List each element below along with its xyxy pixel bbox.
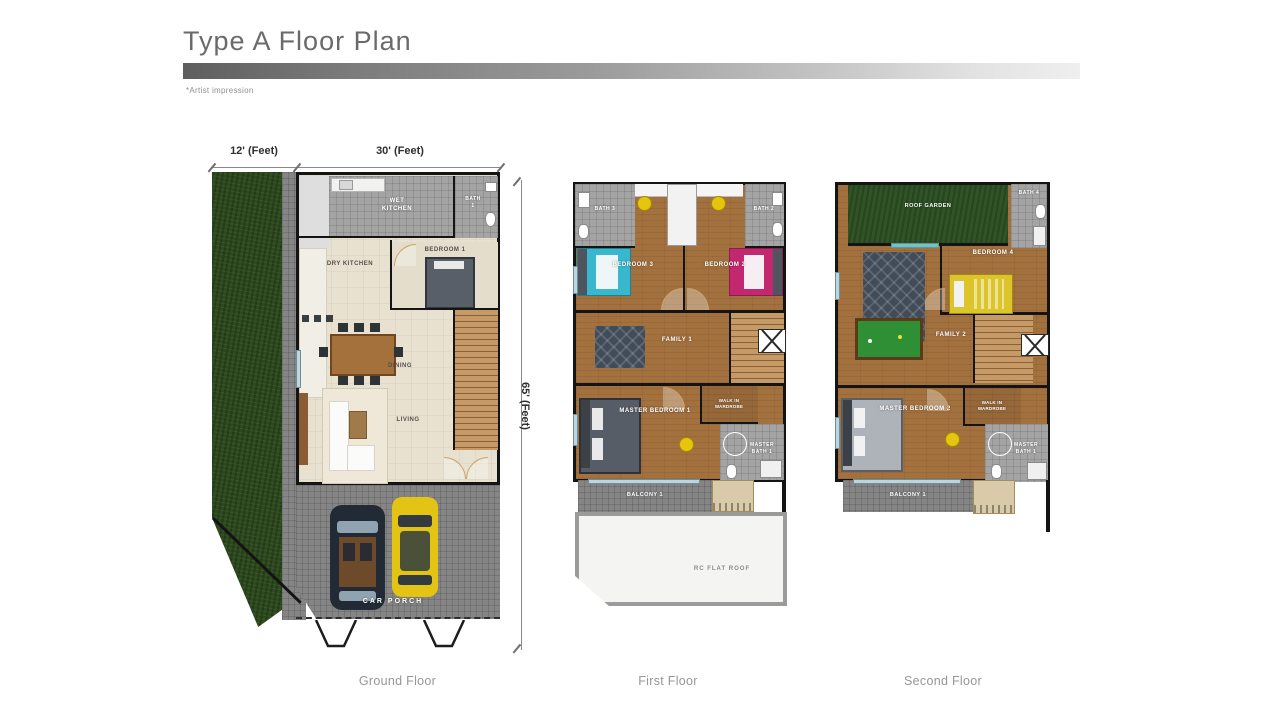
dining-chair xyxy=(354,376,364,385)
wall xyxy=(299,236,455,238)
car-rear-window xyxy=(398,575,432,585)
bed xyxy=(425,257,475,309)
sliding-door-window xyxy=(853,479,961,484)
window xyxy=(573,414,578,446)
car-porch-label: CAR PORCH xyxy=(338,597,448,606)
porch-entry-notch xyxy=(314,620,358,648)
roof-garden-area: ROOF GARDEN xyxy=(848,185,1008,243)
wall xyxy=(453,310,455,450)
dimension-line-top xyxy=(212,167,502,168)
family-1-label: FAMILY 1 xyxy=(645,337,709,345)
wall xyxy=(973,315,975,383)
ground-floor-caption: Ground Floor xyxy=(340,674,455,688)
car-cabin xyxy=(339,537,376,587)
bath-4-room: BATH 4 xyxy=(1011,184,1047,248)
bath-1-label: BATH 1 xyxy=(463,196,483,209)
sofa-seat xyxy=(347,445,375,471)
dining-chair xyxy=(319,347,328,357)
bed-headboard xyxy=(773,249,782,295)
stair-cross-marker xyxy=(758,329,786,353)
wall xyxy=(729,313,731,383)
bed-pillow xyxy=(854,436,865,456)
bed-sheet xyxy=(974,279,1004,309)
pool-ball xyxy=(868,339,872,343)
dry-kitchen-counter xyxy=(299,248,327,398)
black-car xyxy=(330,505,385,610)
planter-box xyxy=(712,480,754,512)
bed-pillow xyxy=(592,438,603,460)
window xyxy=(573,266,578,294)
bed-magenta xyxy=(729,248,783,296)
first-floor-caption: First Floor xyxy=(612,674,724,688)
coffee-table xyxy=(349,411,367,439)
wet-kitchen-label: WET KITCHEN xyxy=(377,198,417,214)
car-windshield xyxy=(337,521,378,533)
master-bath-1-room: MASTER BATH 1 xyxy=(720,424,784,480)
toilet-fixture xyxy=(772,222,783,237)
bar-stool xyxy=(326,315,333,322)
dining-chair xyxy=(354,323,364,332)
bed-sheet xyxy=(744,255,764,289)
balcony-room: BALCONY 1 xyxy=(843,480,973,512)
shower-circle xyxy=(988,432,1012,456)
dining-label: DINING xyxy=(378,363,422,371)
car-seat xyxy=(343,543,355,561)
toilet-fixture xyxy=(578,224,589,239)
bed-cyan xyxy=(577,248,631,296)
bar-stool xyxy=(302,315,309,322)
balcony-1-room: BALCONY 1 xyxy=(578,480,712,512)
bath-4-label: BATH 4 xyxy=(1018,190,1040,197)
bedroom-4-label: BEDROOM 4 xyxy=(947,250,1039,258)
dry-kitchen-label: DRY KITCHEN xyxy=(322,261,378,269)
stair-cross-marker xyxy=(1021,334,1049,356)
rc-flat-roof-area: RC FLAT ROOF xyxy=(575,512,787,606)
rc-flat-roof-label: RC FLAT ROOF xyxy=(667,566,777,574)
bed-pillow xyxy=(434,261,464,269)
living-label: LIVING xyxy=(386,417,430,425)
bedroom-1-label: BEDROOM 1 xyxy=(410,247,480,255)
car-roof xyxy=(400,531,430,571)
stool-yellow xyxy=(637,196,652,211)
walk-in-wardrobe-room: WALK IN WARDROBE xyxy=(700,386,758,422)
dimension-label-12ft: 12' (Feet) xyxy=(210,145,298,157)
planter-hatch xyxy=(974,505,1014,513)
window xyxy=(891,243,939,248)
dimension-label-30ft: 30' (Feet) xyxy=(298,145,502,157)
shower-circle xyxy=(723,432,747,456)
bed-sheet xyxy=(596,255,618,289)
tv-console xyxy=(299,393,308,465)
bed-headboard xyxy=(843,400,852,466)
yellow-car xyxy=(392,497,438,597)
bed-pillow xyxy=(854,408,865,428)
stool-yellow xyxy=(711,196,726,211)
walk-in-wardrobe-room: WALK IN WARDROBE xyxy=(963,388,1021,424)
toilet-fixture xyxy=(726,464,737,479)
wall xyxy=(390,240,392,310)
bed-yellow xyxy=(949,274,1013,314)
bed-headboard xyxy=(578,249,587,295)
sofa xyxy=(329,401,349,471)
bath-2-label: BATH 2 xyxy=(753,206,775,213)
void-shaft xyxy=(667,184,697,246)
bed-headboard xyxy=(581,400,590,468)
master-bath-label: MASTER BATH 1 xyxy=(1008,442,1044,455)
master-bedroom-1-label: MASTER BEDROOM 1 xyxy=(597,408,713,416)
bed-pillow xyxy=(954,281,964,307)
second-floor-plan: ROOF GARDEN BATH 4 BEDROOM 4 FAMILY 2 MA… xyxy=(835,182,1063,612)
bath-1-room: BATH 1 xyxy=(455,176,498,238)
window xyxy=(835,417,840,449)
roof-garden-label: ROOF GARDEN xyxy=(903,203,953,210)
second-floor-caption: Second Floor xyxy=(887,674,999,688)
wall xyxy=(963,388,965,424)
wall xyxy=(453,176,455,238)
wall xyxy=(683,246,685,310)
window xyxy=(296,350,301,388)
sink-fixture xyxy=(772,192,783,206)
bar-stool xyxy=(314,315,321,322)
planter-hatch xyxy=(713,503,753,511)
toilet-fixture xyxy=(1035,204,1046,219)
balcony-label: BALCONY 1 xyxy=(881,492,935,499)
window xyxy=(835,272,840,300)
dining-chair xyxy=(370,376,380,385)
bath-3-label: BATH 3 xyxy=(593,206,617,213)
sink-fixture xyxy=(485,182,497,192)
living-rug xyxy=(322,388,388,484)
master-bath-1-label: MASTER BATH 1 xyxy=(744,442,780,455)
dining-chair xyxy=(370,323,380,332)
ground-floor-plan: 12' (Feet) 30' (Feet) WET KITCHEN BATH 1… xyxy=(210,145,540,670)
bath-2-room: BATH 2 xyxy=(745,184,784,246)
first-floor-plan: BATH 3 BATH 2 BEDROOM 3 BEDROOM 2 FAMILY… xyxy=(573,182,793,612)
bathtub-fixture xyxy=(1033,226,1046,246)
pool-ball xyxy=(898,335,902,339)
bath-3-room: BATH 3 xyxy=(575,184,635,246)
page-title: Type A Floor Plan xyxy=(183,26,412,57)
chair-yellow xyxy=(679,437,694,452)
family-rug xyxy=(595,326,645,368)
wall xyxy=(1046,480,1050,532)
dining-chair xyxy=(338,376,348,385)
kitchen-sink xyxy=(339,180,353,190)
artist-impression-note: *Artist impression xyxy=(186,86,254,95)
toilet-fixture xyxy=(485,212,496,227)
porch-entry-notch xyxy=(422,620,466,648)
balcony-1-label: BALCONY 1 xyxy=(618,492,672,499)
staircase xyxy=(455,310,498,450)
wet-kitchen-room: WET KITCHEN xyxy=(329,176,455,236)
toilet-fixture xyxy=(991,464,1002,479)
planter-box xyxy=(973,480,1015,514)
bathtub-fixture xyxy=(760,460,782,478)
pool-table xyxy=(855,318,923,360)
chair-yellow xyxy=(945,432,960,447)
dimension-label-65ft: 65' (Feet) xyxy=(519,366,531,446)
bedroom-3-label: BEDROOM 3 xyxy=(593,262,673,270)
master-bath-room: MASTER BATH 1 xyxy=(985,424,1048,482)
title-underline-bar xyxy=(183,63,1080,79)
dining-chair xyxy=(394,347,403,357)
dining-chair xyxy=(338,323,348,332)
walk-in-wardrobe-label: WALK IN WARDROBE xyxy=(976,400,1008,412)
porch-dashed-edge xyxy=(296,617,500,619)
sliding-door-window xyxy=(588,479,700,484)
walk-in-wardrobe-label: WALK IN WARDROBE xyxy=(713,398,745,410)
bedroom-2-label: BEDROOM 2 xyxy=(685,262,765,270)
car-seat xyxy=(360,543,372,561)
sink-fixture xyxy=(578,192,590,208)
bathtub-fixture xyxy=(1027,462,1047,480)
car-windshield xyxy=(398,515,432,527)
wall xyxy=(700,386,702,422)
